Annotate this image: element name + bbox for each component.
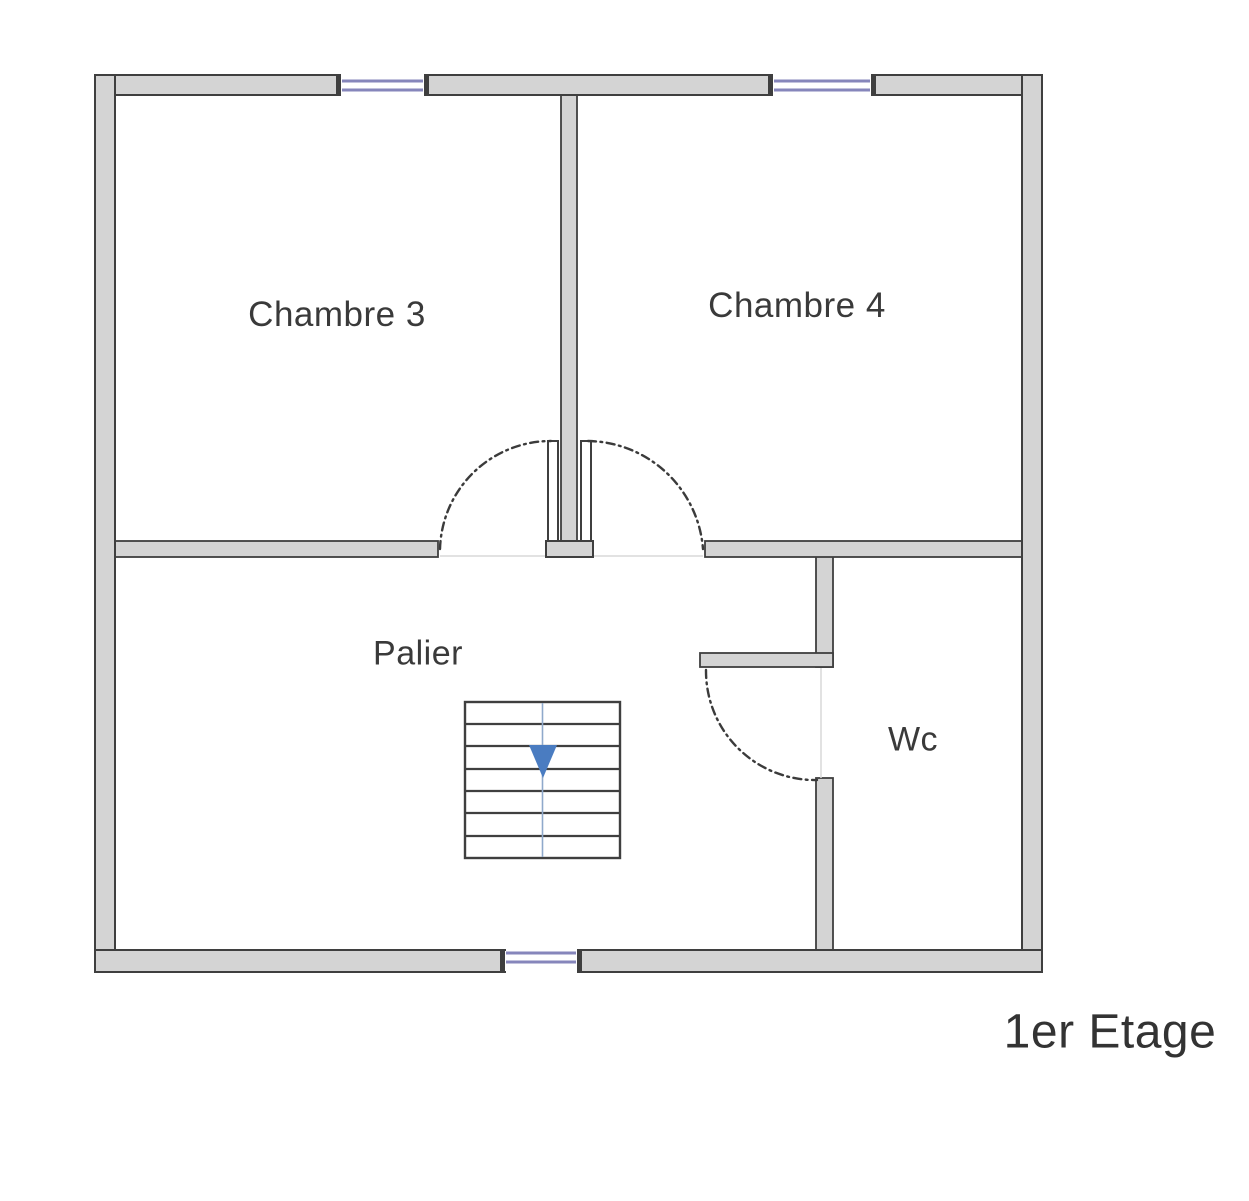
wc-wall-lower-stub: [816, 778, 833, 951]
palier-wall-right: [705, 541, 1023, 557]
room-label-chambre3: Chambre 3: [248, 295, 426, 335]
window-bottom: [500, 950, 582, 972]
wc-wall-upper: [816, 556, 833, 667]
window-top-right: [768, 75, 876, 95]
floorplan-canvas: Chambre 3 Chambre 4 Palier Wc 1er Etage: [0, 0, 1249, 1201]
door-swing-arc-wc: [706, 670, 817, 780]
top-wall-right: [872, 75, 1042, 95]
window-jamb: [577, 950, 582, 972]
door-jamb-right: [581, 441, 591, 553]
window-jamb: [871, 75, 876, 95]
palier-wall-left: [115, 541, 438, 557]
door-frame-base: [546, 541, 593, 557]
room-label-chambre4: Chambre 4: [708, 286, 886, 326]
window-jamb: [768, 75, 773, 95]
staircase: [465, 702, 620, 858]
window-top-left: [336, 75, 429, 95]
top-wall-left: [95, 75, 340, 95]
door-jamb-left: [548, 441, 558, 553]
floor-title: 1er Etage: [1004, 1005, 1217, 1060]
bedroom-divider-wall: [561, 94, 577, 557]
window-jamb: [336, 75, 341, 95]
top-wall-middle: [425, 75, 772, 95]
room-label-palier: Palier: [373, 635, 463, 674]
door-swing-arc-chambre4: [588, 441, 703, 549]
left-wall: [95, 75, 115, 972]
bottom-wall-right: [578, 950, 1042, 972]
door-swing-arc-chambre3: [440, 441, 551, 549]
right-wall: [1022, 75, 1042, 972]
window-jamb: [424, 75, 429, 95]
room-label-wc: Wc: [888, 721, 938, 760]
bottom-wall-left: [95, 950, 505, 972]
window-jamb: [500, 950, 505, 972]
wc-wall-horizontal: [700, 653, 833, 667]
